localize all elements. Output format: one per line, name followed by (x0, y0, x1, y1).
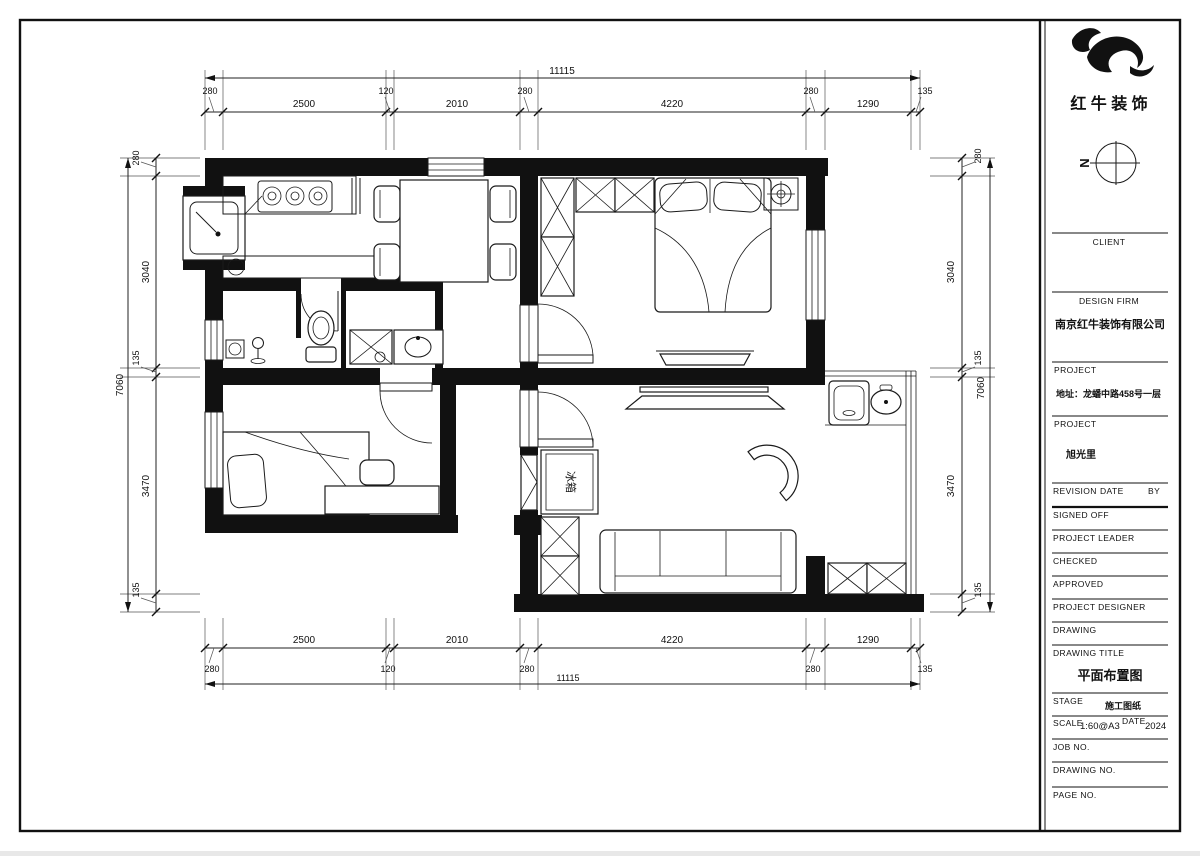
dimensions-top: 11115 280 2500 120 2010 280 4220 280 129… (201, 66, 933, 150)
extension-lines-top (205, 70, 920, 150)
date-label: DATE (1100, 486, 1124, 496)
dining-chair (490, 186, 516, 222)
dimensions-bottom: 280 2500 120 2010 280 4220 280 1290 135 … (201, 618, 933, 690)
dim: 4220 (661, 99, 684, 110)
dim: 280 (131, 150, 141, 165)
dim: 135 (973, 582, 983, 597)
wardrobe-top (576, 178, 654, 212)
bathroom-window (205, 320, 223, 360)
dim: 280 (803, 86, 818, 96)
shelf-column (521, 455, 537, 510)
dim: 3040 (141, 260, 152, 283)
project-name: 旭光里 (1065, 448, 1096, 461)
dim: 2500 (293, 635, 316, 646)
stage-value: 施工图纸 (1105, 700, 1141, 711)
kitchen-window (428, 158, 484, 176)
dim: 3470 (141, 474, 152, 497)
dim: 120 (378, 86, 393, 96)
dim: 1290 (857, 635, 880, 646)
by-label: BY (1148, 486, 1160, 496)
dim: 135 (973, 350, 983, 365)
balcony-cabinets (828, 563, 906, 594)
living-room-tv (626, 387, 784, 409)
dining-chair (490, 244, 516, 280)
drawing-no-label: DRAWING NO. (1053, 765, 1116, 775)
project-address: 地址：龙蟠中路458号一层 (1056, 388, 1161, 399)
sheet-border (20, 20, 1180, 831)
dim: 135 (131, 582, 141, 597)
drawing-label: DRAWING (1053, 625, 1097, 635)
kitchen-sink (183, 196, 245, 260)
revision-label: REVISION (1053, 486, 1097, 496)
desk (325, 486, 439, 514)
client-label: CLIENT (1093, 237, 1126, 247)
bathroom (226, 311, 443, 364)
dim: 2010 (446, 635, 469, 646)
date-field-label: DATE (1122, 716, 1146, 726)
dim: 280 (519, 664, 534, 674)
washing-machine (350, 330, 392, 364)
dim: 135 (917, 664, 932, 674)
title-block: 红 牛 装 饰 N CLIENT DESIGN FIRM 南京红牛装饰有限公司 … (1052, 28, 1168, 800)
desk-chair (360, 460, 394, 485)
dim: 2500 (293, 99, 316, 110)
dim: 135 (917, 86, 932, 96)
north-label: N (1077, 158, 1092, 167)
company-logo: 红 牛 装 饰 (1070, 28, 1154, 113)
dim-left-total: 7060 (115, 373, 126, 396)
master-bedroom (541, 178, 798, 365)
drawing-title-value: 平面布置图 (1077, 668, 1142, 683)
checked-label: CHECKED (1053, 556, 1097, 566)
company-logo-text: 红 牛 装 饰 (1070, 94, 1147, 113)
drawing-title-label: DRAWING TITLE (1053, 648, 1124, 658)
design-firm-label: DESIGN FIRM (1079, 296, 1139, 306)
dining-table (400, 180, 488, 282)
dim: 135 (131, 350, 141, 365)
scale-label: SCALE (1053, 718, 1083, 728)
dim-top-total: 11115 (549, 66, 575, 77)
dining-chair (374, 186, 400, 222)
bedroom2-window (205, 412, 223, 488)
project-designer-label: PROJECT DESIGNER (1053, 602, 1146, 612)
dim: 280 (204, 664, 219, 674)
dim: 280 (517, 86, 532, 96)
cooktop (258, 181, 332, 212)
toilet (306, 311, 336, 362)
title-block-fields: CLIENT DESIGN FIRM 南京红牛装饰有限公司 PROJECT 地址… (1052, 233, 1168, 800)
sofa (600, 530, 796, 593)
dim: 280 (202, 86, 217, 96)
fridge-label: 冰箱 (564, 471, 578, 493)
design-firm-value: 南京红牛装饰有限公司 (1055, 317, 1165, 331)
balcony (825, 381, 906, 594)
cabinet-column (541, 517, 579, 595)
bedroom2 (223, 432, 537, 515)
double-bed (655, 178, 771, 312)
dim: 2010 (446, 99, 469, 110)
dim: 4220 (661, 635, 684, 646)
bedroom2-door (380, 383, 432, 443)
living-room: 冰箱 (541, 387, 811, 595)
wardrobe-left (541, 178, 574, 296)
job-no-label: JOB NO. (1053, 742, 1090, 752)
dim: 3040 (946, 260, 957, 283)
dim-bottom-total: 11115 (556, 673, 579, 683)
balcony-basin (871, 385, 901, 414)
shower-fixture (251, 338, 265, 364)
stage-label: STAGE (1053, 696, 1083, 706)
north-arrow: N (1077, 141, 1140, 185)
project-label-1: PROJECT (1054, 365, 1096, 375)
dim: 3470 (946, 474, 957, 497)
date-value: 2024 (1145, 721, 1166, 732)
dim: 120 (380, 664, 395, 674)
dim-right-total: 7060 (976, 376, 987, 399)
master-bedroom-window (806, 230, 825, 320)
floor-plan-drawing: 红 牛 装 饰 N CLIENT DESIGN FIRM 南京红牛装饰有限公司 … (0, 0, 1200, 851)
dim: 1290 (857, 99, 880, 110)
bedroom-tv-console (656, 351, 754, 365)
project-leader-label: PROJECT LEADER (1053, 533, 1135, 543)
drawing-sheet: 红 牛 装 饰 N CLIENT DESIGN FIRM 南京红牛装饰有限公司 … (0, 0, 1200, 851)
kitchen-divider-screen (352, 178, 360, 214)
dimensions-right: 280 3040 135 3470 135 7060 (930, 148, 995, 616)
dim: 280 (973, 148, 983, 163)
page-no-label: PAGE NO. (1053, 790, 1097, 800)
project-label-2: PROJECT (1054, 419, 1096, 429)
bathroom-basin (394, 330, 443, 364)
dining-chair (374, 244, 400, 280)
living-room-door (520, 390, 593, 447)
armchair (748, 433, 811, 501)
fridge: 冰箱 (541, 450, 598, 514)
scale-value: 1:60@A3 (1080, 721, 1120, 732)
master-bedroom-door (520, 304, 593, 363)
floor-drain (226, 340, 244, 358)
approved-label: APPROVED (1053, 579, 1103, 589)
signed-off-label: SIGNED OFF (1053, 510, 1109, 520)
dim: 280 (805, 664, 820, 674)
dining-area (374, 180, 516, 282)
